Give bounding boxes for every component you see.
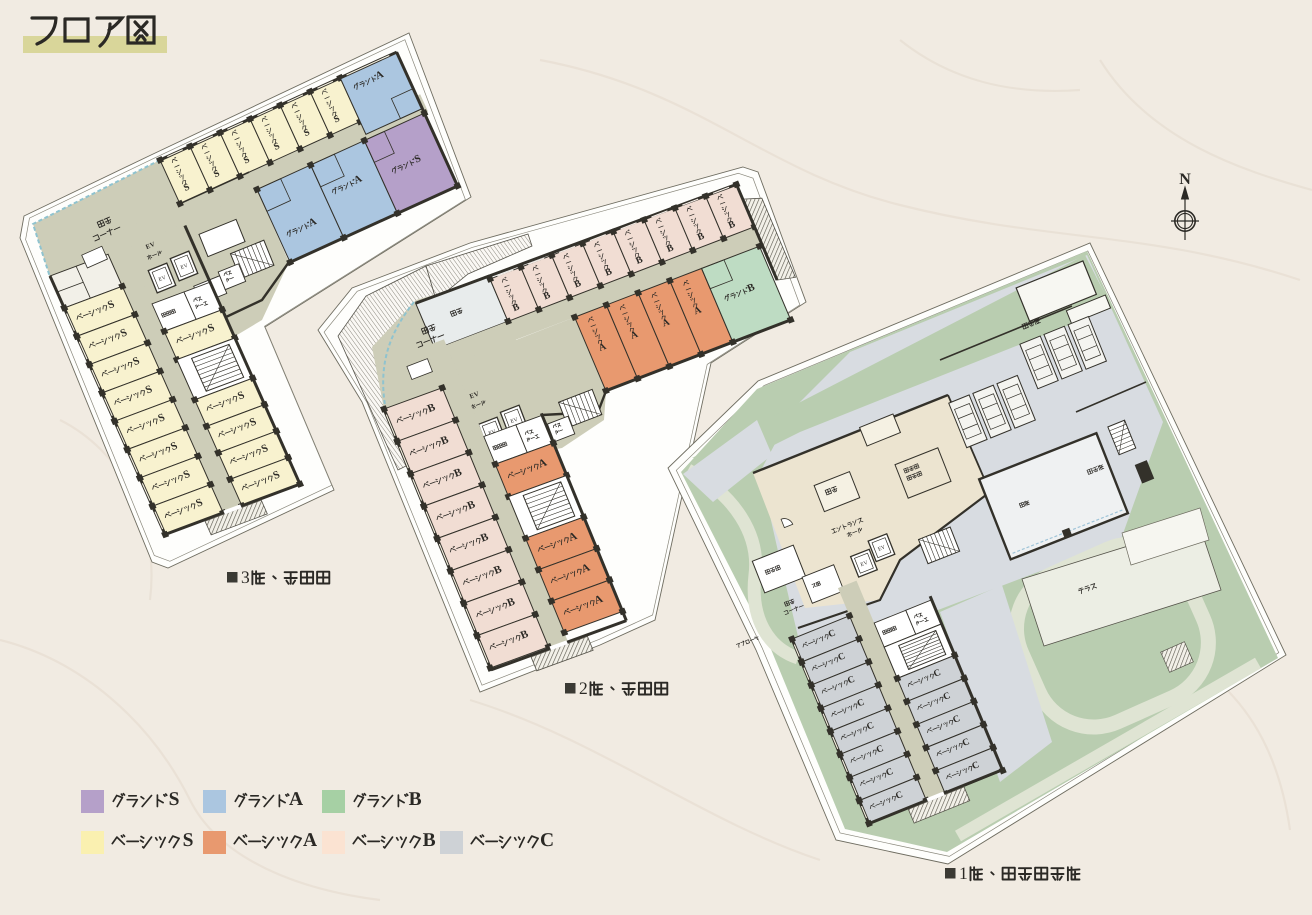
svg-text:S: S bbox=[169, 789, 180, 810]
svg-text:A: A bbox=[303, 830, 317, 851]
svg-text:1: 1 bbox=[959, 863, 968, 883]
svg-text:3: 3 bbox=[241, 567, 250, 587]
svg-text:B: B bbox=[409, 789, 422, 810]
svg-text:2: 2 bbox=[579, 678, 588, 698]
svg-text:A: A bbox=[289, 789, 303, 810]
svg-text:C: C bbox=[540, 830, 554, 851]
svg-text:N: N bbox=[1179, 171, 1191, 188]
svg-text:B: B bbox=[423, 830, 436, 851]
svg-text:S: S bbox=[183, 830, 194, 851]
